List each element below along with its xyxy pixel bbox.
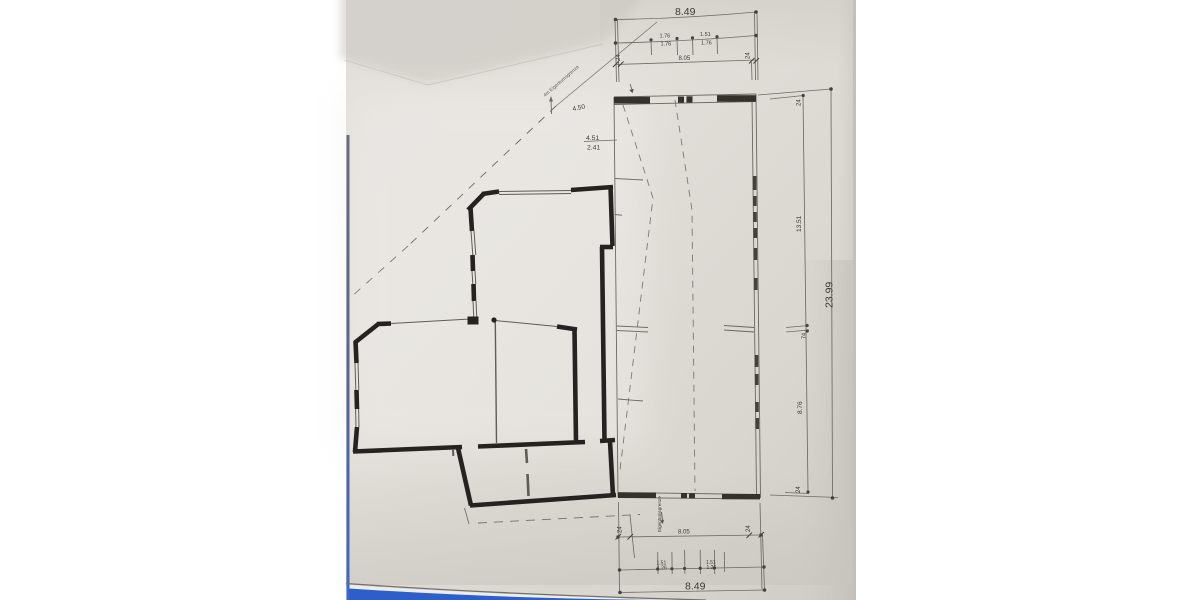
svg-text:1.51: 1.51 [700,32,711,38]
svg-text:2.41: 2.41 [587,145,600,152]
svg-text:24: 24 [746,52,752,59]
svg-text:74: 74 [802,333,808,339]
svg-text:24: 24 [746,525,752,532]
svg-text:1.26: 1.26 [657,566,667,572]
svg-text:4.51: 4.51 [586,135,599,142]
svg-text:24: 24 [797,99,803,106]
svg-text:1.76: 1.76 [661,42,672,48]
svg-text:1.26: 1.26 [707,565,717,571]
svg-text:8.05: 8.05 [678,530,690,536]
svg-text:24: 24 [616,54,622,61]
svg-text:8.49: 8.49 [685,581,706,593]
svg-text:1.76: 1.76 [701,41,712,47]
svg-text:24: 24 [618,526,624,533]
svg-text:8.49: 8.49 [675,6,696,18]
svg-text:Eigentumsgrenze: Eigentumsgrenze [657,496,662,532]
svg-text:23.99: 23.99 [824,282,836,308]
svg-text:24: 24 [796,486,802,493]
svg-text:8.05: 8.05 [679,56,691,62]
svg-text:13.51: 13.51 [796,215,803,232]
svg-text:8.76: 8.76 [797,401,804,414]
svg-text:1.76: 1.76 [660,34,671,40]
